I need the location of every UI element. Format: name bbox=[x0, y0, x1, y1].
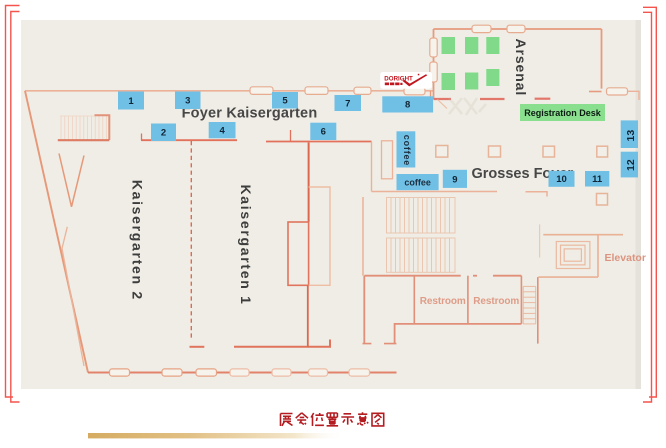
svg-text:9: 9 bbox=[452, 174, 457, 185]
svg-text:coffee: coffee bbox=[402, 135, 412, 166]
svg-text:Arsenal: Arsenal bbox=[513, 39, 529, 97]
svg-text:Registration Desk: Registration Desk bbox=[524, 108, 602, 118]
svg-text:DORIGHT: DORIGHT bbox=[384, 75, 413, 82]
svg-text:1: 1 bbox=[128, 96, 134, 107]
svg-text:Restroom: Restroom bbox=[473, 296, 519, 307]
svg-text:12: 12 bbox=[625, 159, 637, 171]
svg-text:Elevator: Elevator bbox=[605, 252, 646, 264]
svg-text:6: 6 bbox=[321, 127, 326, 138]
svg-text:13: 13 bbox=[625, 130, 637, 142]
svg-text:4: 4 bbox=[219, 126, 225, 137]
svg-text:coffee: coffee bbox=[404, 177, 431, 187]
svg-text:3: 3 bbox=[185, 96, 190, 107]
svg-text:8: 8 bbox=[405, 100, 410, 111]
svg-text:7: 7 bbox=[345, 98, 350, 109]
svg-text:Kaisergarten 2: Kaisergarten 2 bbox=[130, 180, 146, 301]
svg-text:Kaisergarten 1: Kaisergarten 1 bbox=[238, 185, 254, 306]
svg-text:10: 10 bbox=[556, 174, 567, 185]
svg-text:5: 5 bbox=[282, 96, 288, 107]
svg-text:2: 2 bbox=[161, 128, 166, 139]
svg-text:11: 11 bbox=[592, 174, 603, 185]
svg-text:Restroom: Restroom bbox=[420, 296, 466, 307]
